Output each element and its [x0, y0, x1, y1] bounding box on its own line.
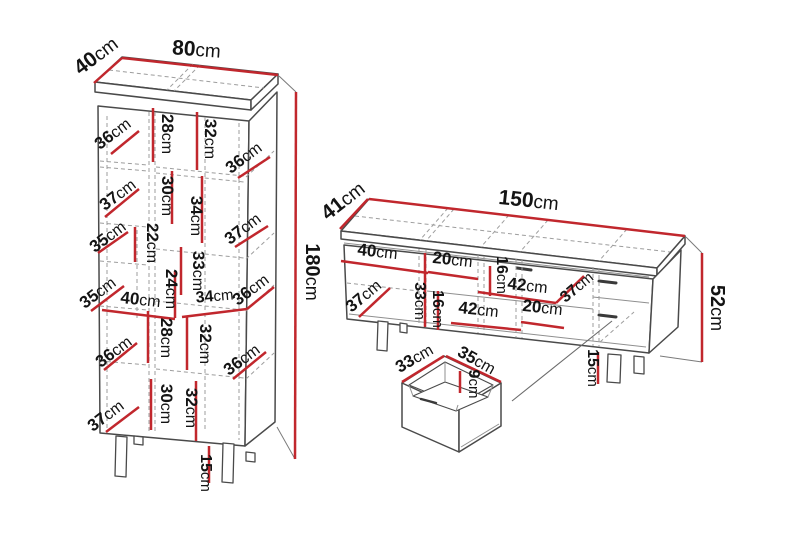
- dimension-line: [295, 92, 296, 459]
- dimension-label: 22cm: [143, 223, 162, 263]
- tv-stand-height-extension-line: [686, 237, 702, 253]
- cabinet-leg: [115, 436, 127, 477]
- dimension-label: 52cm: [706, 285, 728, 331]
- dimension-label: 34cm: [195, 286, 234, 306]
- dimension: 52cm: [702, 253, 728, 362]
- drawer-handle: [599, 281, 616, 283]
- dimension-label: 30cm: [157, 384, 176, 424]
- cabinet-height-extension-line: [279, 76, 296, 92]
- dimension-label: 15cm: [197, 454, 214, 492]
- drawer-handle: [517, 268, 531, 270]
- dimension-label: 24cm: [162, 269, 181, 309]
- dimension: 15cm: [197, 446, 214, 492]
- dimension-label: 33cm: [392, 340, 436, 377]
- drawer-handle: [599, 315, 616, 317]
- cabinet-leg: [134, 436, 143, 445]
- tv-stand-height-extension-line: [660, 356, 702, 362]
- dimension-label: 180cm: [301, 243, 323, 300]
- dimension: 180cm: [295, 92, 323, 459]
- dimension-label: 34cm: [187, 196, 206, 236]
- dimension: 16cm: [429, 290, 446, 330]
- dimension-label: 150cm: [497, 186, 559, 215]
- dimension-label: 30cm: [158, 176, 177, 216]
- dimension: 33cm: [392, 340, 444, 382]
- cabinet-height-extension-line: [277, 427, 295, 459]
- dimension-label: 80cm: [171, 36, 221, 62]
- dimension-label: 28cm: [158, 114, 177, 154]
- dimension: 30cm: [158, 171, 177, 224]
- diagram-canvas: 40cm80cm180cm15cm36cm28cm32cm36cm37cm30c…: [0, 0, 800, 533]
- tv-stand-leg: [634, 356, 644, 374]
- tv-stand-leg: [400, 323, 407, 333]
- dimension-label: 32cm: [182, 388, 201, 428]
- cabinet-leg: [246, 452, 255, 462]
- tv-stand-leg: [607, 354, 621, 383]
- dimension-label: 33cm: [189, 251, 208, 291]
- dimension-label: 15cm: [584, 349, 601, 387]
- tv-stand-leg: [377, 321, 388, 351]
- dimension-label: 16cm: [429, 290, 446, 328]
- dimension-label: 28cm: [157, 318, 176, 358]
- dimension-label: 32cm: [196, 324, 215, 364]
- dimension-label: 32cm: [201, 119, 220, 159]
- cabinet-leg: [222, 443, 234, 483]
- furniture-dimension-diagram: 40cm80cm180cm15cm36cm28cm32cm36cm37cm30c…: [0, 0, 800, 533]
- dimension-label: 9cm: [465, 370, 482, 399]
- dimension-label: 33cm: [411, 282, 428, 320]
- dimension: 15cm: [584, 349, 601, 387]
